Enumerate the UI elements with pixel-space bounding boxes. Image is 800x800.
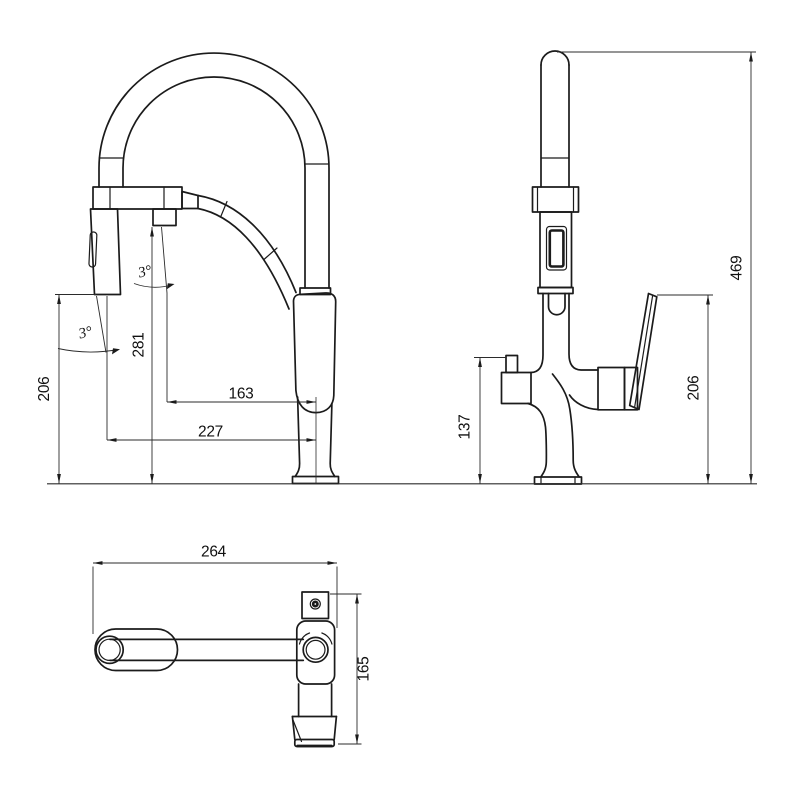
tube-socket-inner — [306, 640, 325, 659]
dim-label-front-206: 206 — [36, 377, 53, 402]
tube-socket-outer — [303, 637, 328, 662]
hose-inner-line — [198, 209, 289, 310]
dim-label-264: 264 — [201, 544, 227, 561]
spray-nozzle-inner — [99, 639, 120, 660]
arm-taper-block — [182, 192, 198, 209]
dim-label-469: 469 — [729, 256, 746, 281]
spray-head — [91, 209, 121, 295]
handle-right-edge — [334, 717, 336, 740]
side-view — [502, 51, 657, 484]
handle-lever-inner-line — [635, 296, 653, 408]
top-dimensions: 264 165 — [93, 544, 373, 745]
filter-spout-nub — [506, 356, 518, 373]
holder-collar — [533, 187, 579, 212]
front-dimensions: 206 281 163 227 3° 3° — [36, 227, 316, 484]
column-left-fillet — [531, 294, 543, 373]
handle-left-edge — [292, 717, 294, 740]
angle-arc-lower — [58, 349, 119, 353]
hose-holder-block — [153, 209, 176, 226]
body-base-front — [293, 477, 339, 484]
body-shank-left — [295, 397, 299, 477]
side-dimensions: 469 206 137 — [457, 52, 757, 484]
spray-nozzle-outer — [96, 636, 123, 663]
dim-label-163: 163 — [229, 386, 254, 403]
spray-holder-arm — [93, 187, 182, 209]
body-left-skirt — [528, 404, 546, 478]
handle-mount-block — [598, 368, 625, 410]
dim-label-side-206: 206 — [686, 376, 703, 401]
column-right-fillet — [569, 294, 598, 371]
hose-outer-line — [198, 196, 296, 293]
dim-label-165: 165 — [356, 657, 373, 682]
collar-hook-right — [322, 633, 332, 644]
spray-axis-slant-line — [97, 296, 107, 353]
mount-hole-inner — [313, 602, 317, 606]
angle-arc-upper — [134, 284, 173, 288]
faucet-dimension-drawing: 206 281 163 227 3° 3° 469 206 — [0, 0, 800, 800]
handle-mount-fillet — [570, 395, 599, 410]
aerator-outline — [549, 294, 566, 315]
hose-tick-2 — [265, 248, 278, 259]
dim-label-281: 281 — [131, 333, 148, 358]
tube-axis-slant-line — [162, 227, 168, 293]
body-inner-curve — [553, 374, 580, 477]
dim-label-137: 137 — [457, 415, 474, 440]
faucet-body-front — [294, 293, 336, 413]
angle-label-upper: 3° — [136, 263, 154, 282]
riser-tube-top — [541, 51, 569, 65]
technical-drawing-canvas: 206 281 163 227 3° 3° 469 206 — [0, 0, 800, 800]
front-view — [89, 53, 339, 483]
dim-label-227: 227 — [198, 424, 223, 441]
spray-head-outline-top — [95, 629, 178, 671]
collar-hook-left — [300, 633, 310, 644]
gooseneck-outer-arc — [99, 53, 329, 288]
top-view — [95, 592, 336, 747]
head-joint-band — [538, 288, 573, 294]
swivel-collar — [297, 621, 335, 684]
body-shank-right — [330, 404, 335, 477]
angle-label-lower: 3° — [76, 324, 94, 343]
filter-spout-block — [502, 373, 532, 404]
head-button-window-inner — [550, 231, 564, 267]
